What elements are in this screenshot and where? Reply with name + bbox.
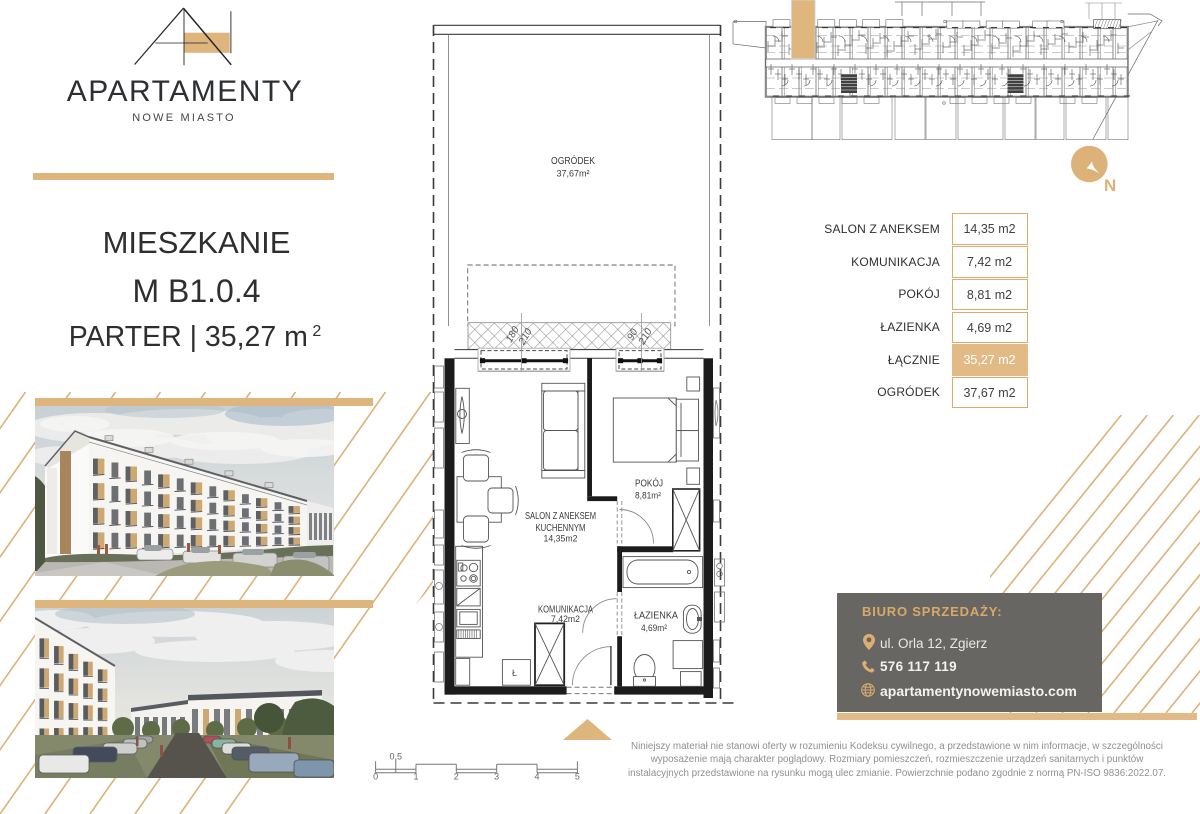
svg-text:37,67m²: 37,67m² xyxy=(557,169,590,180)
svg-text:0: 0 xyxy=(373,772,378,782)
svg-text:POKÓJ: POKÓJ xyxy=(635,477,663,490)
svg-text:5: 5 xyxy=(575,772,580,782)
svg-text:OGRÓDEK: OGRÓDEK xyxy=(551,154,595,167)
svg-text:N: N xyxy=(1104,176,1116,195)
svg-text:SALON Z ANEKSEM: SALON Z ANEKSEM xyxy=(525,511,596,522)
svg-text:Ł: Ł xyxy=(512,668,517,678)
svg-text:ŁAZIENKA: ŁAZIENKA xyxy=(634,611,678,622)
svg-text:14,35m2: 14,35m2 xyxy=(544,534,578,545)
svg-text:4,69m²: 4,69m² xyxy=(641,623,667,634)
svg-text:0,5: 0,5 xyxy=(390,752,403,762)
svg-text:3: 3 xyxy=(494,772,499,782)
svg-text:2: 2 xyxy=(454,772,459,782)
svg-text:1: 1 xyxy=(413,772,418,782)
svg-text:KUCHENNYM: KUCHENNYM xyxy=(536,523,586,534)
svg-text:8,81m²: 8,81m² xyxy=(635,491,661,502)
svg-text:4: 4 xyxy=(535,772,540,782)
